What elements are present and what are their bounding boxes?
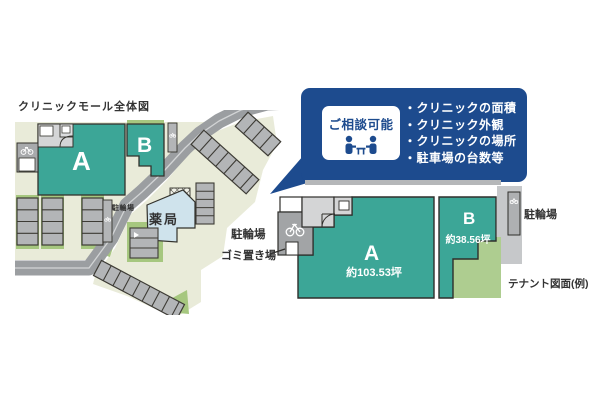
- site-unit-b-label: B: [137, 134, 152, 158]
- consultation-callout: ご相談可能 ・クリニックの面積 ・クリニック外観 ・クリニックの場所 ・駐車場の…: [301, 88, 527, 182]
- consultation-topic: ・クリニックの場所: [404, 133, 517, 150]
- tenant-bike-bar-right: [508, 192, 520, 235]
- tenant-unit-a-label: A: [364, 242, 379, 266]
- clinic-mall-infographic: クリニックモール全体図: [0, 0, 600, 400]
- consultation-badge-label: ご相談可能: [322, 114, 400, 133]
- site-bicycle-area: [17, 143, 38, 172]
- site-bicycle-parking-label: 駐輪場: [112, 203, 135, 213]
- tenant-bicycle-parking-left-label: 駐輪場: [231, 226, 266, 242]
- meeting-icon: [344, 135, 378, 155]
- site-unit-a-label: A: [72, 146, 91, 177]
- consultation-badge: ご相談可能: [322, 106, 400, 160]
- consultation-topic: ・クリニックの面積: [404, 100, 517, 117]
- tenant-unit-a-area: 約103.53坪: [333, 264, 415, 280]
- pharmacy-label: 薬局: [149, 209, 179, 228]
- site-parking-rows: [17, 198, 103, 245]
- site-bike-bar-top: [168, 123, 177, 152]
- consultation-topic-list: ・クリニックの面積 ・クリニック外観 ・クリニックの場所 ・駐車場の台数等: [404, 100, 517, 166]
- tenant-plan-caption: テナント図面(例): [508, 276, 589, 291]
- tenant-bicycle-parking-right-label: 駐輪場: [524, 206, 557, 222]
- garbage-box: [286, 242, 298, 255]
- tenant-unit-b-area: 約38.56坪: [437, 231, 499, 246]
- tenant-top-road: [305, 180, 501, 185]
- consultation-topic: ・クリニック外観: [404, 117, 517, 134]
- tenant-garbage-area-label: ゴミ置き場: [221, 247, 276, 263]
- parking-row-small: [130, 228, 158, 258]
- consultation-topic: ・駐車場の台数等: [404, 150, 517, 167]
- tenant-entry-room: [280, 197, 302, 212]
- site-bike-bar: [103, 200, 112, 242]
- tenant-unit-b-label: B: [463, 209, 475, 229]
